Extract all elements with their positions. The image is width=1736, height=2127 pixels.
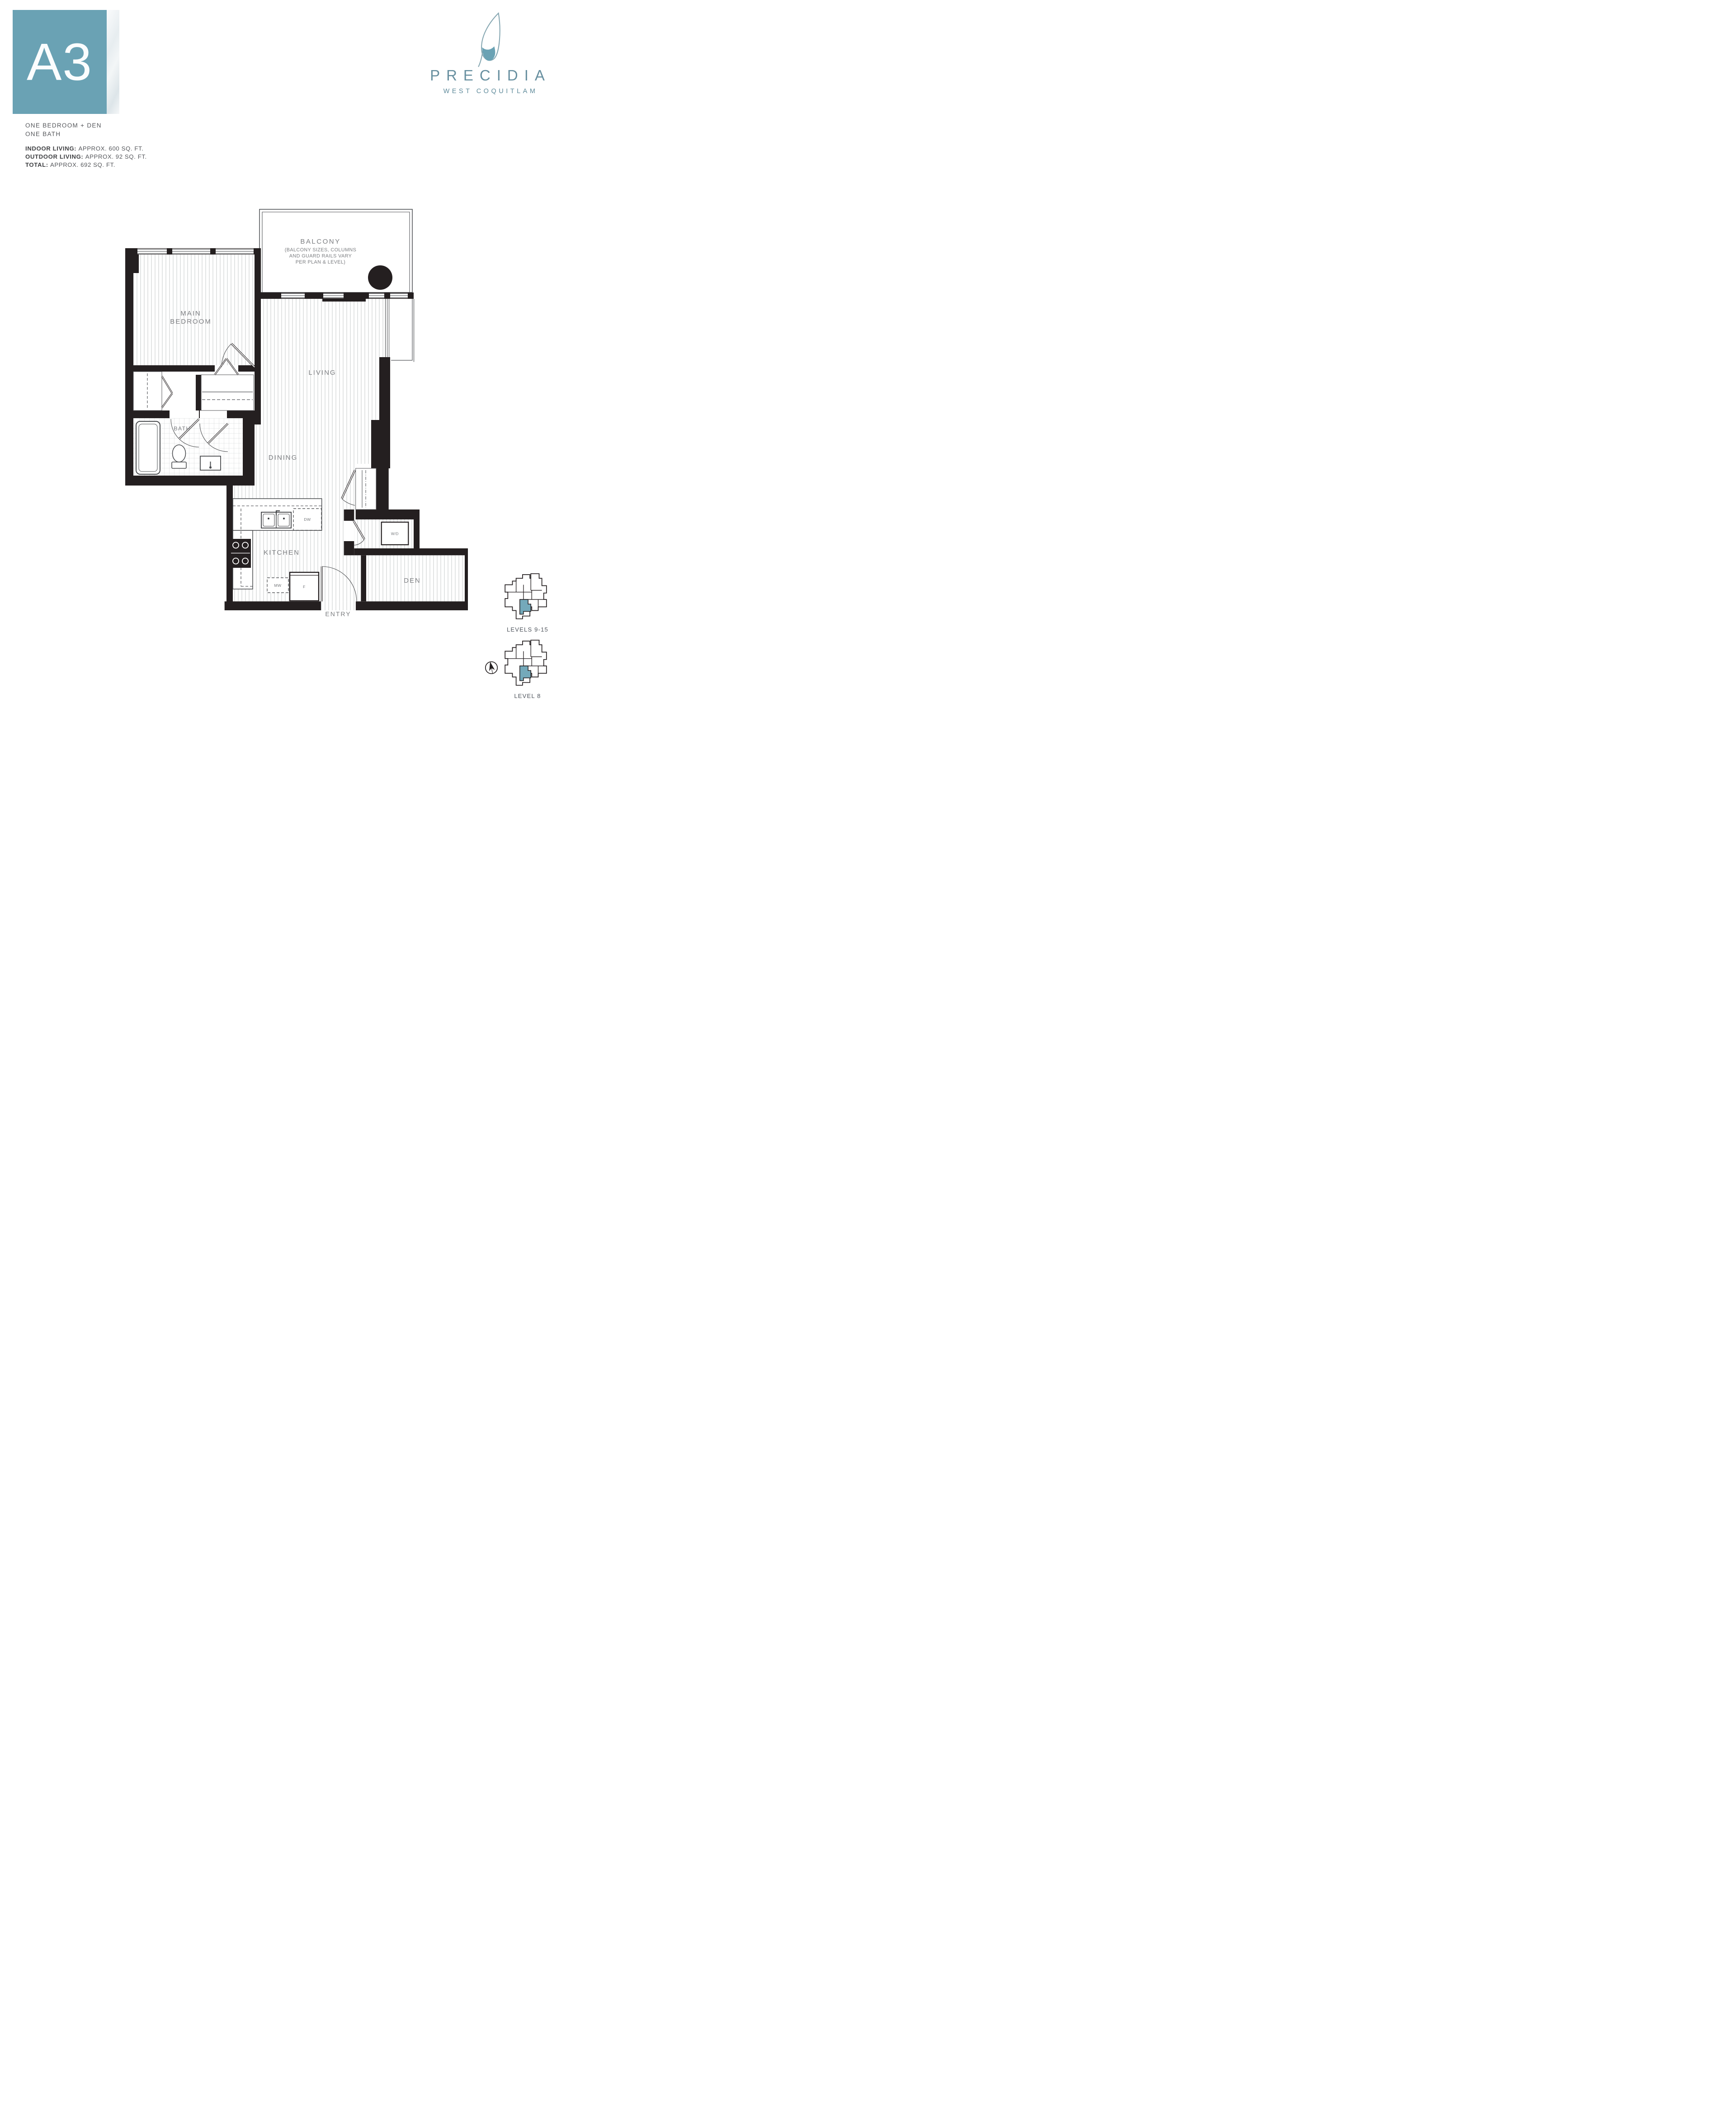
room-label-bedroom-2: BEDROOM bbox=[170, 318, 212, 325]
badge-artwork bbox=[107, 10, 119, 114]
plan-type-line2: ONE BATH bbox=[25, 131, 61, 137]
balcony-note-1: (BALCONY SIZES, COLUMNS bbox=[285, 247, 356, 253]
stat-indoor: INDOOR LIVING: APPROX. 600 SQ. FT. bbox=[25, 145, 144, 152]
sliding-door bbox=[322, 299, 366, 302]
plan-code: A3 bbox=[27, 36, 93, 88]
stat-total-label: TOTAL: bbox=[25, 161, 48, 168]
label-wd: W/D bbox=[391, 532, 399, 536]
plan-code-badge: A3 bbox=[13, 10, 107, 114]
room-label-balcony: BALCONY bbox=[300, 238, 340, 245]
plan-type-line1: ONE BEDROOM + DEN bbox=[25, 122, 102, 129]
leaf-logo-icon bbox=[476, 12, 505, 68]
floorplan-drawing: BALCONY (BALCONY SIZES, COLUMNS AND GUAR… bbox=[124, 204, 468, 618]
balcony-note-3: PER PLAN & LEVEL) bbox=[296, 259, 346, 265]
toilet-tank bbox=[172, 462, 186, 468]
room-label-entry: ENTRY bbox=[325, 610, 351, 618]
room-label-bath: BATH bbox=[174, 425, 190, 432]
stat-total: TOTAL: APPROX. 692 SQ. FT. bbox=[25, 161, 115, 168]
exterior-edge bbox=[391, 299, 414, 362]
keyplan-lower-label: LEVEL 8 bbox=[489, 693, 566, 699]
compass-icon bbox=[483, 659, 500, 676]
room-label-living: LIVING bbox=[308, 369, 336, 377]
room-label-dining: DINING bbox=[269, 454, 298, 462]
stat-indoor-label: INDOOR LIVING: bbox=[25, 145, 76, 152]
stat-indoor-value: APPROX. 600 SQ. FT. bbox=[78, 145, 143, 152]
room-label-den: DEN bbox=[404, 577, 421, 585]
stat-outdoor: OUTDOOR LIVING: APPROX. 92 SQ. FT. bbox=[25, 153, 147, 160]
stat-outdoor-label: OUTDOOR LIVING: bbox=[25, 153, 83, 160]
keyplan-levels-9-15 bbox=[503, 572, 549, 624]
label-fridge: F bbox=[303, 585, 306, 589]
label-mw: MW bbox=[274, 583, 281, 588]
label-dw: DW bbox=[304, 517, 311, 522]
keyplan-level-8 bbox=[503, 639, 549, 690]
balcony-note-2: AND GUARD RAILS VARY bbox=[289, 254, 352, 259]
keyplan-upper-label: LEVELS 9-15 bbox=[489, 626, 566, 633]
bathtub bbox=[136, 421, 160, 474]
floorplan-sheet: A3 ONE BEDROOM + DEN ONE BATH INDOOR LIV… bbox=[0, 0, 579, 709]
brand-location: WEST COQUITLAM bbox=[389, 88, 579, 95]
balcony-column bbox=[368, 265, 392, 290]
stat-outdoor-value: APPROX. 92 SQ. FT. bbox=[85, 153, 147, 160]
toilet-bowl bbox=[173, 445, 186, 462]
room-label-kitchen: KITCHEN bbox=[264, 549, 300, 557]
stat-total-value: APPROX. 692 SQ. FT. bbox=[50, 161, 115, 168]
room-label-bedroom-1: MAIN bbox=[180, 310, 201, 317]
brand-name: PRECIDIA bbox=[389, 67, 579, 84]
floor-hatching bbox=[133, 255, 465, 610]
